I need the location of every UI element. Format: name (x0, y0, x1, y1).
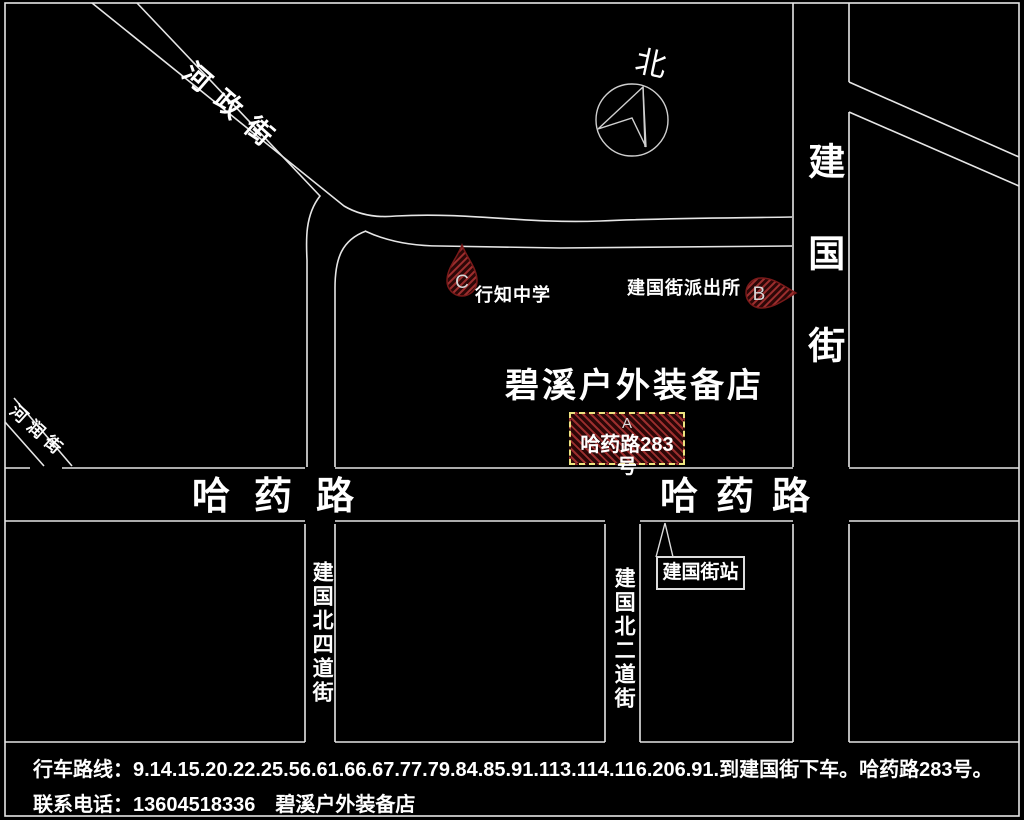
store-marker-box: A 哈药路283号 (569, 412, 685, 465)
bus-stop-callout: 建国街站 (656, 556, 745, 590)
marker-school: C (447, 245, 477, 296)
street-label-jianguo-north-2nd: 建国北二道街 (612, 567, 635, 711)
police-station-label: 建国街派出所 (627, 279, 741, 299)
street-label-jianguo: 建国街 (802, 142, 843, 418)
phone-info-line: 联系电话：13604518336 碧溪户外装备店 (33, 788, 415, 817)
street-label-hayao-east: 哈药路 (660, 477, 828, 519)
compass-needle-axis (643, 87, 645, 147)
marker-school-letter: C (455, 272, 469, 293)
side-street-east-edge (335, 231, 366, 467)
route-info-line: 行车路线：9.14.15.20.22.25.56.61.66.67.77.79.… (33, 753, 992, 782)
street-label-jianguo-north-4th: 建国北四道街 (310, 561, 333, 705)
marker-police-letter: B (753, 284, 766, 305)
store-marker-letter: A (571, 416, 683, 432)
compass-rose (596, 84, 668, 156)
road-northeast-diagonal (849, 82, 1019, 186)
map-canvas: C B (0, 0, 1024, 820)
store-location-map: C B 北 河政街 河润街 建国街 哈药路 哈药路 建国北四道街 建国北二道街 … (0, 0, 1024, 820)
school-label: 行知中学 (475, 286, 551, 306)
road-mid-horizontal-south-edge (365, 231, 792, 248)
store-address: 哈药路283号 (571, 434, 683, 478)
store-title: 碧溪户外装备店 (505, 368, 764, 405)
street-label-hayao-west: 哈药路 (192, 477, 378, 519)
map-border (5, 3, 1019, 816)
road-hezheng-south-edge-into-side-street (137, 3, 320, 467)
bus-stop-label: 建国街站 (662, 562, 738, 583)
road-hezheng-north-edge (92, 3, 792, 221)
marker-police: B (746, 278, 796, 308)
road-jianguo-south-section (793, 524, 849, 742)
bus-stop-pointer (656, 523, 673, 557)
